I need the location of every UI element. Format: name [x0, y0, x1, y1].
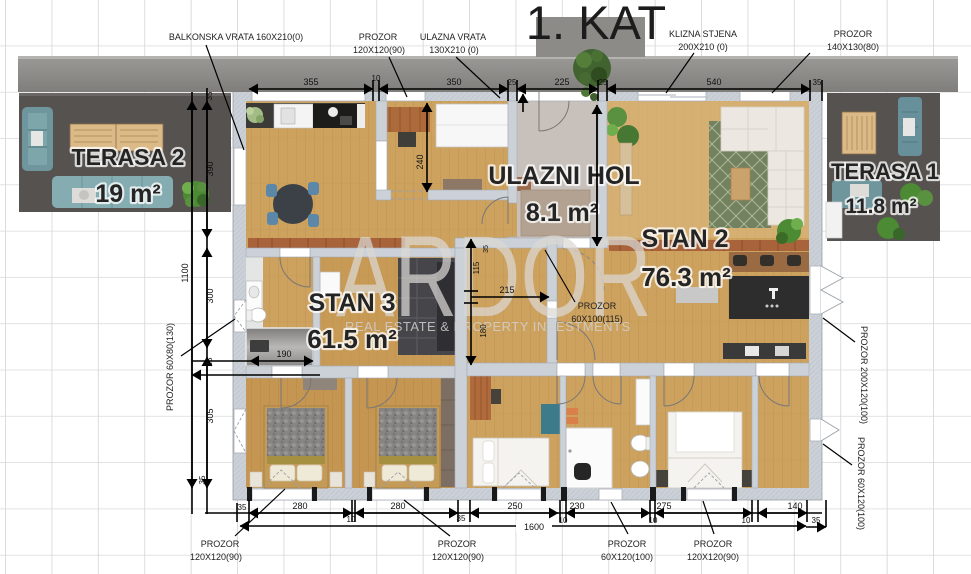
svg-text:130X210 (0): 130X210 (0)	[429, 45, 479, 55]
svg-text:35: 35	[238, 503, 247, 512]
svg-text:61.5 m²: 61.5 m²	[307, 324, 397, 354]
svg-text:8.1 m²: 8.1 m²	[526, 199, 598, 227]
svg-text:115: 115	[472, 261, 481, 274]
svg-text:60X120(100): 60X120(100)	[601, 552, 653, 562]
svg-text:280: 280	[292, 501, 307, 511]
svg-text:300: 300	[205, 288, 215, 303]
svg-text:280: 280	[390, 501, 405, 511]
svg-text:230: 230	[569, 501, 584, 511]
svg-text:PROZOR: PROZOR	[201, 539, 240, 549]
svg-text:STAN 3: STAN 3	[308, 289, 395, 317]
svg-text:1. KAT: 1. KAT	[526, 0, 666, 49]
svg-text:10: 10	[347, 515, 356, 524]
svg-text:35: 35	[483, 245, 490, 253]
svg-text:10: 10	[649, 516, 658, 525]
svg-text:10: 10	[742, 516, 751, 525]
svg-text:190: 190	[276, 349, 291, 359]
svg-text:PROZOR 60X120(100): PROZOR 60X120(100)	[856, 437, 866, 530]
svg-text:35: 35	[457, 514, 466, 523]
svg-text:35: 35	[813, 78, 822, 87]
svg-text:19 m²: 19 m²	[95, 180, 160, 208]
svg-text:25: 25	[599, 78, 608, 87]
svg-text:TERASA 2: TERASA 2	[72, 144, 185, 170]
svg-text:11.8 m²: 11.8 m²	[845, 195, 916, 218]
svg-text:35: 35	[198, 475, 207, 484]
svg-text:TERASA 1: TERASA 1	[831, 159, 939, 184]
svg-text:1100: 1100	[180, 263, 190, 282]
svg-text:KLIZNA STJENA: KLIZNA STJENA	[669, 29, 737, 39]
svg-text:140: 140	[787, 501, 802, 511]
svg-text:ULAZNA VRATA: ULAZNA VRATA	[420, 32, 486, 42]
svg-text:10: 10	[559, 516, 568, 525]
svg-text:390: 390	[205, 161, 215, 176]
svg-text:35: 35	[205, 91, 214, 100]
svg-text:PROZOR: PROZOR	[359, 32, 398, 42]
svg-text:120X120(90): 120X120(90)	[432, 552, 484, 562]
svg-text:120X120(90): 120X120(90)	[190, 552, 242, 562]
svg-text:355: 355	[303, 77, 318, 87]
svg-text:PROZOR 60X80(130): PROZOR 60X80(130)	[165, 323, 175, 411]
svg-text:25: 25	[508, 78, 517, 87]
svg-text:60X100(115): 60X100(115)	[571, 314, 622, 324]
svg-text:PROZOR: PROZOR	[834, 29, 873, 39]
svg-text:BALKONSKA VRATA 160X210(0): BALKONSKA VRATA 160X210(0)	[169, 32, 303, 42]
svg-text:STAN 2: STAN 2	[641, 225, 728, 253]
svg-text:PROZOR 200X120(100): PROZOR 200X120(100)	[859, 326, 869, 424]
svg-text:120X120(90): 120X120(90)	[353, 45, 405, 55]
svg-text:540: 540	[706, 77, 721, 87]
svg-text:PROZOR: PROZOR	[578, 301, 617, 311]
svg-text:1600: 1600	[524, 522, 544, 532]
svg-text:120X120(90): 120X120(90)	[687, 552, 739, 562]
svg-text:76.3 m²: 76.3 m²	[641, 262, 731, 292]
svg-text:PROZOR: PROZOR	[694, 539, 733, 549]
svg-text:35: 35	[812, 516, 821, 525]
svg-text:305: 305	[205, 408, 215, 423]
svg-text:10: 10	[372, 74, 381, 83]
svg-text:200X210 (0): 200X210 (0)	[678, 42, 728, 52]
svg-text:180: 180	[479, 324, 488, 338]
svg-text:PROZOR: PROZOR	[438, 539, 477, 549]
svg-text:240: 240	[415, 154, 425, 169]
svg-text:PROZOR: PROZOR	[608, 539, 647, 549]
svg-text:ULAZNI HOL: ULAZNI HOL	[488, 162, 639, 190]
svg-text:215: 215	[499, 285, 514, 295]
svg-text:140X130(80): 140X130(80)	[827, 42, 879, 52]
svg-text:225: 225	[554, 77, 569, 87]
svg-text:275: 275	[656, 501, 671, 511]
svg-text:250: 250	[507, 501, 522, 511]
svg-text:350: 350	[446, 77, 461, 87]
